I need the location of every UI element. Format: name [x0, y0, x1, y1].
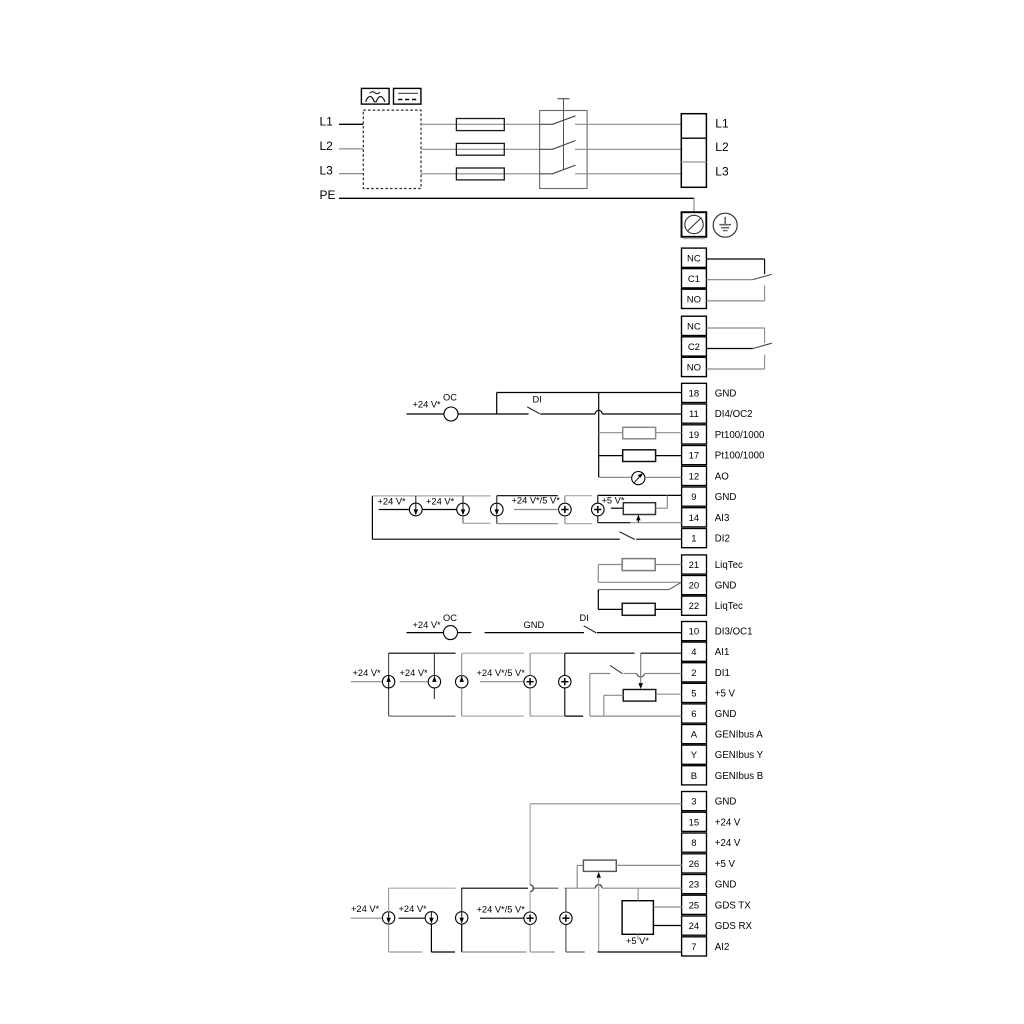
svg-text:DI: DI [533, 395, 542, 405]
svg-text:NC: NC [687, 321, 701, 332]
svg-text:DI4/OC2: DI4/OC2 [715, 409, 753, 420]
svg-text:NC: NC [687, 253, 701, 264]
svg-text:GND: GND [715, 492, 737, 503]
svg-text:10: 10 [689, 627, 700, 638]
svg-text:GND: GND [715, 880, 737, 891]
svg-text:+24 V*/5 V*: +24 V*/5 V* [512, 496, 561, 506]
svg-text:C2: C2 [688, 342, 700, 353]
svg-text:26: 26 [689, 859, 700, 870]
svg-text:+24 V*: +24 V* [400, 668, 429, 678]
svg-text:GENIbus A: GENIbus A [715, 730, 763, 741]
svg-text:24: 24 [689, 921, 700, 932]
svg-text:1: 1 [691, 534, 696, 545]
svg-text:17: 17 [689, 451, 700, 462]
svg-text:AI3: AI3 [715, 513, 730, 524]
svg-text:GENIbus Y: GENIbus Y [715, 750, 764, 761]
svg-text:L2: L2 [715, 140, 729, 154]
svg-text:2: 2 [691, 668, 696, 679]
svg-text:LiqTec: LiqTec [715, 601, 743, 612]
svg-text:DI: DI [580, 613, 589, 623]
svg-text:GND: GND [715, 797, 737, 808]
svg-text:C1: C1 [688, 274, 700, 285]
svg-text:NO: NO [687, 294, 701, 305]
svg-text:+5 V: +5 V [715, 859, 736, 870]
svg-text:GND: GND [524, 620, 545, 630]
svg-text:L3: L3 [320, 164, 334, 178]
svg-text:25: 25 [689, 900, 700, 911]
svg-text:LiqTec: LiqTec [715, 560, 743, 571]
svg-text:Pt100/1000: Pt100/1000 [715, 430, 765, 441]
svg-text:14: 14 [689, 513, 700, 524]
svg-text:Pt100/1000: Pt100/1000 [715, 451, 765, 462]
svg-text:+24 V*/5 V*: +24 V*/5 V* [477, 904, 526, 914]
svg-text:+24 V*: +24 V* [353, 668, 382, 678]
svg-text:L1: L1 [320, 114, 334, 128]
svg-text:+24 V*: +24 V* [413, 620, 442, 630]
svg-text:19: 19 [689, 430, 700, 441]
svg-text:23: 23 [689, 880, 700, 891]
svg-text:6: 6 [691, 709, 696, 720]
svg-text:AI2: AI2 [715, 942, 730, 953]
svg-text:21: 21 [689, 560, 700, 571]
svg-text:AO: AO [715, 471, 729, 482]
svg-text:11: 11 [689, 409, 699, 420]
svg-text:20: 20 [689, 581, 700, 592]
svg-text:DI3/OC1: DI3/OC1 [715, 627, 753, 638]
svg-text:4: 4 [691, 647, 696, 658]
svg-text:+24 V*: +24 V* [399, 904, 428, 914]
svg-text:B: B [691, 771, 697, 782]
svg-text:+24 V*/5 V*: +24 V*/5 V* [477, 668, 526, 678]
svg-text:+24 V*: +24 V* [426, 497, 455, 507]
svg-text:L2: L2 [320, 139, 334, 153]
svg-text:12: 12 [689, 471, 700, 482]
svg-text:L3: L3 [715, 165, 729, 179]
svg-text:7: 7 [691, 942, 696, 953]
svg-text:+5 V: +5 V [715, 688, 736, 699]
svg-text:+24 V*: +24 V* [351, 904, 380, 914]
svg-text:+24 V*: +24 V* [378, 497, 407, 507]
svg-text:18: 18 [689, 388, 700, 399]
svg-text:GENIbus B: GENIbus B [715, 771, 763, 782]
svg-text:9: 9 [691, 492, 696, 503]
svg-text:GND: GND [715, 709, 737, 720]
svg-text:DI2: DI2 [715, 534, 730, 545]
svg-text:8: 8 [691, 838, 696, 849]
svg-text:GDS TX: GDS TX [715, 900, 751, 911]
svg-text:OC: OC [443, 613, 457, 623]
svg-text:+5 V*: +5 V* [626, 936, 649, 946]
svg-text:OC: OC [443, 393, 457, 403]
svg-text:GND: GND [715, 388, 737, 399]
svg-text:+5 V*: +5 V* [602, 495, 625, 505]
svg-text:+24 V*: +24 V* [413, 400, 442, 410]
svg-text:PE: PE [320, 188, 336, 202]
svg-text:A: A [691, 730, 698, 741]
svg-text:NO: NO [687, 363, 701, 374]
svg-text:GDS RX: GDS RX [715, 921, 753, 932]
svg-text:+24 V: +24 V [715, 838, 741, 849]
svg-text:AI1: AI1 [715, 647, 730, 658]
svg-text:5: 5 [691, 688, 696, 699]
svg-text:22: 22 [689, 601, 700, 612]
svg-text:3: 3 [691, 797, 696, 808]
svg-text:Y: Y [691, 750, 698, 761]
svg-text:DI1: DI1 [715, 668, 730, 679]
svg-text:15: 15 [689, 817, 700, 828]
svg-text:GND: GND [715, 581, 737, 592]
svg-text:L1: L1 [715, 117, 729, 131]
svg-text:+24 V: +24 V [715, 817, 741, 828]
